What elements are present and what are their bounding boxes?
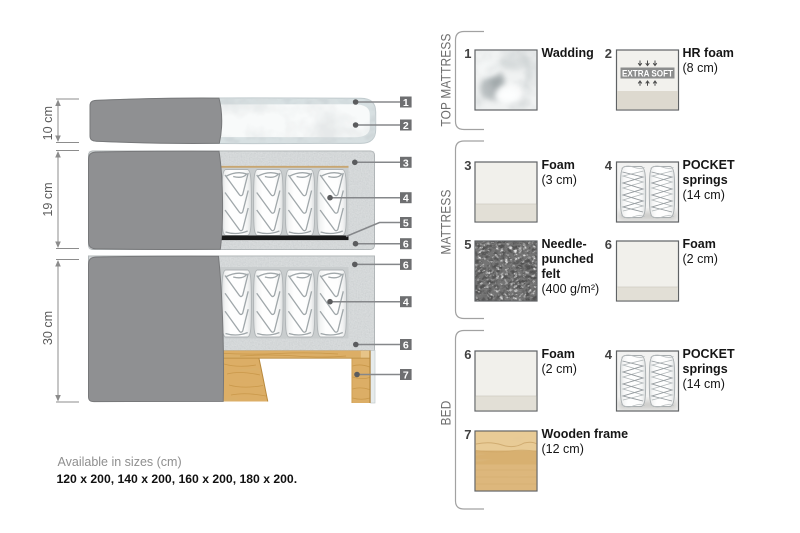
- svg-text:6: 6: [403, 239, 409, 251]
- svg-text:30 cm: 30 cm: [40, 311, 55, 345]
- svg-text:3: 3: [403, 157, 409, 169]
- svg-text:EXTRA SOFT: EXTRA SOFT: [622, 68, 673, 78]
- svg-text:6: 6: [403, 259, 409, 271]
- svg-text:4: 4: [403, 193, 409, 205]
- svg-text:2: 2: [403, 120, 409, 132]
- svg-text:5: 5: [403, 218, 409, 230]
- svg-text:1: 1: [403, 97, 409, 109]
- svg-text:10 cm: 10 cm: [40, 106, 55, 140]
- svg-text:6: 6: [403, 340, 409, 352]
- svg-text:19 cm: 19 cm: [40, 182, 55, 216]
- svg-text:7: 7: [403, 370, 409, 382]
- svg-text:4: 4: [403, 297, 409, 309]
